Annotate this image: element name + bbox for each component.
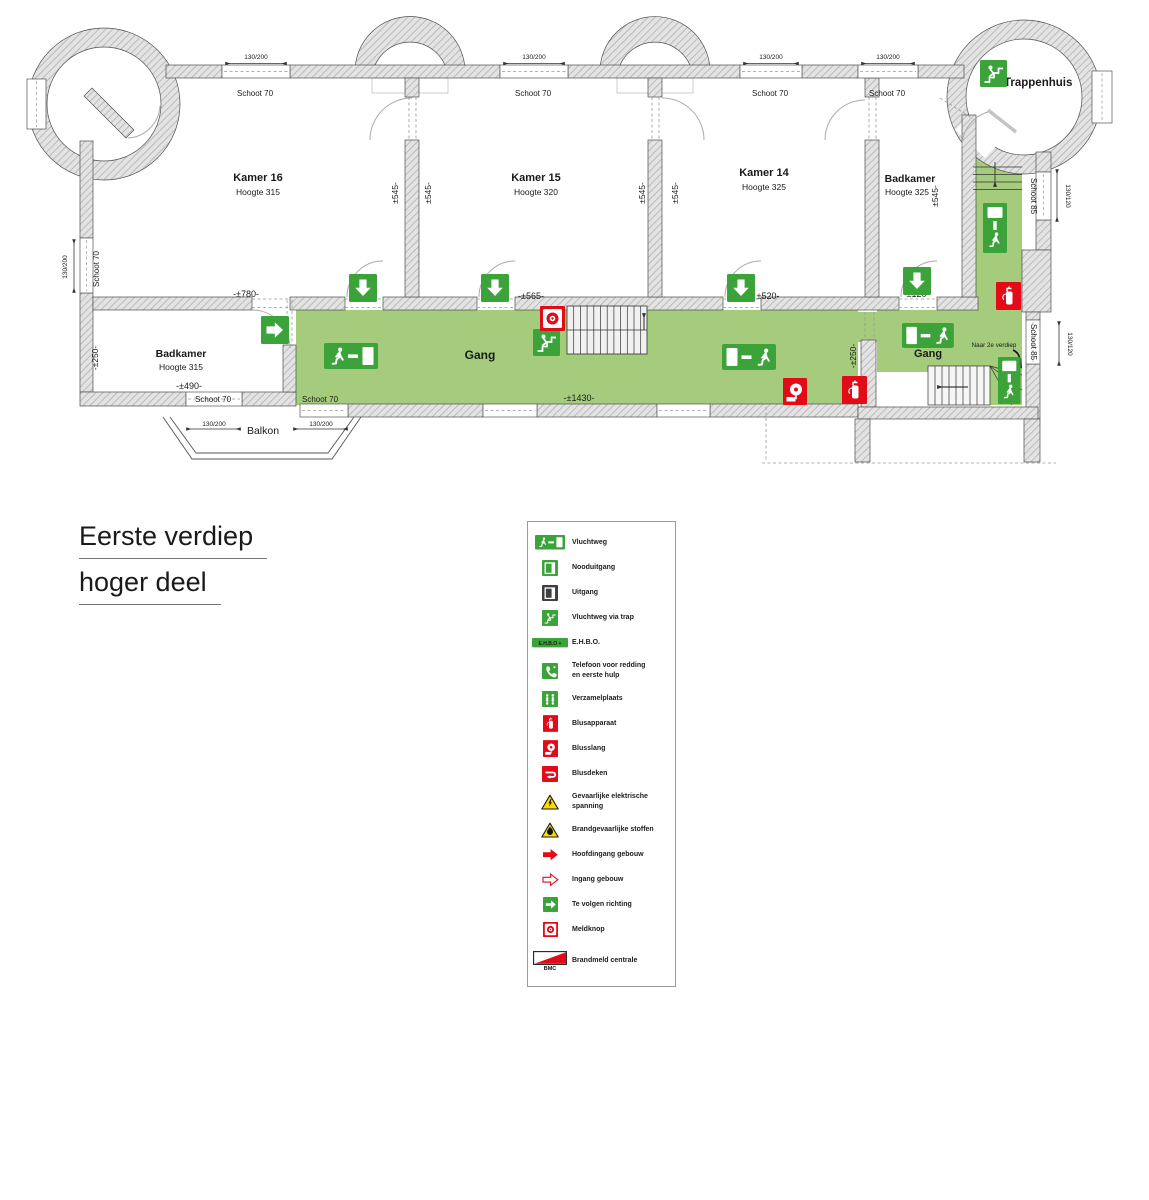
evacuation-plan-page: { "title": {"line1": "Eerste verdiep", "… [0, 0, 1149, 1200]
emergency-exit-icon [528, 560, 572, 576]
room-kamer14-label: Kamer 14 [739, 167, 789, 179]
legend-label: en eerste hulp [572, 671, 645, 680]
fire-hose-icon [528, 740, 572, 757]
legend-label: Verzamelplaats [572, 694, 623, 703]
schoot85-bottom: Schoot 85 [1029, 324, 1038, 361]
electrical-hazard-icon [528, 794, 572, 810]
escape-via-stairs-icon [528, 610, 572, 626]
dim-130-200: 130/200 [522, 54, 546, 61]
legend-label: Brandgevaarlijke stoffen [572, 825, 654, 834]
rescue-phone-icon [528, 663, 572, 679]
legend-item-ingang: Ingang gebouw [528, 867, 675, 892]
direction-right-icon [261, 316, 289, 344]
escape-route-sign-icon [528, 535, 572, 550]
fire-blanket-icon [528, 766, 572, 782]
legend-item-hoofdingang: Hoofdingang gebouw [528, 842, 675, 867]
room-kamer16-height: Hoogte 315 [236, 187, 280, 197]
alarm-button-icon [540, 306, 565, 331]
legend-label: spanning [572, 802, 648, 811]
dim-130-120-bottom: 130/120 [1066, 332, 1073, 356]
escape-route-sign [722, 344, 776, 370]
legend-item-ehbo: E.H.B.O + E.H.B.O. [528, 630, 675, 655]
gang-right-label: Gang [914, 348, 942, 360]
dim-545: ±545- [390, 182, 400, 204]
legend-label: Brandmeld centrale [572, 956, 637, 965]
dim-130-200-balkon: 130/200 [202, 421, 226, 428]
main-entrance-arrow-icon [528, 847, 572, 863]
bmc-label: BMC [544, 966, 557, 972]
dim-1430: -±1430- [564, 393, 595, 403]
direction-down-icon [903, 267, 931, 295]
dim-250-left: -±250- [90, 346, 100, 371]
dim-545: ±545- [637, 182, 647, 204]
legend-label: Nooduitgang [572, 563, 615, 572]
legend-item-blusapparaat: Blusapparaat [528, 711, 675, 736]
room-kamer15-label: Kamer 15 [511, 172, 561, 184]
schoot70-label: Schoot 70 [869, 89, 906, 98]
legend-label: Ingang gebouw [572, 875, 623, 884]
legend-item-blusslang: Blusslang [528, 736, 675, 761]
legend-label: Blusapparaat [572, 719, 616, 728]
room-kamer15-height: Hoogte 320 [514, 187, 558, 197]
escape-via-stairs-icon [533, 329, 560, 356]
dim-545: ±545- [670, 182, 680, 204]
legend-label: Gevaarlijke elektrische [572, 792, 648, 801]
dim-130-120-top: 130/120 [1064, 184, 1071, 208]
dim-520: ±520- [757, 291, 780, 301]
room-kamer14-height: Hoogte 325 [742, 182, 786, 192]
legend-item-te-volgen-richting: Te volgen richting [528, 892, 675, 917]
room-badkamer-onder-label: Badkamer [156, 348, 207, 360]
balkon-label: Balkon [247, 425, 279, 437]
legend-label: Telefoon voor redding [572, 661, 645, 670]
legend-label: Meldknop [572, 925, 605, 934]
dim-130-200-left: 130/200 [62, 255, 69, 279]
legend-item-elektrische-spanning: Gevaarlijke elektrische spanning [528, 786, 675, 817]
direction-down-icon [349, 274, 377, 302]
fire-extinguisher-icon [528, 715, 572, 732]
flammable-hazard-icon [528, 822, 572, 838]
title-line1: Eerste verdiep [79, 517, 267, 559]
legend-item-verzamelplaats: Verzamelplaats [528, 686, 675, 711]
legend-item-vluchtweg: Vluchtweg [528, 530, 675, 555]
floor-plan-svg: Kamer 16 Hoogte 315 Kamer 15 Hoogte 320 … [0, 0, 1149, 480]
page-title: Eerste verdiep hoger deel [79, 517, 267, 605]
legend-item-brandmeldcentrale: BMC Brandmeld centrale [528, 942, 675, 980]
room-badkamer-boven-label: Badkamer [885, 173, 936, 185]
schoot70-bottom: Schoot 70 [195, 395, 232, 404]
entrance-arrow-icon [528, 872, 572, 888]
legend-item-uitgang: Uitgang [528, 580, 675, 605]
stairs-middle [567, 306, 647, 354]
dim-780: -±780- [233, 289, 259, 299]
fire-extinguisher-icon [996, 282, 1021, 310]
schoot70-label: Schoot 70 [752, 89, 789, 98]
direction-down-icon [727, 274, 755, 302]
schoot85-top: Schoot 85 [1029, 178, 1038, 215]
legend-label: Hoofdingang gebouw [572, 850, 644, 859]
legend-label: Vluchtweg [572, 538, 607, 547]
legend-item-telefoon: Telefoon voor redding en eerste hulp [528, 655, 675, 686]
dim-130-200: 130/200 [759, 54, 783, 61]
legend-label: Blusdeken [572, 769, 607, 778]
escape-route-sign-vertical [983, 203, 1007, 253]
dim-130-200-balkon: 130/200 [309, 421, 333, 428]
direction-down-icon [481, 274, 509, 302]
naar-2e-verdiep-label: Naar 2e verdiep [972, 342, 1017, 349]
dim-130-200: 130/200 [876, 54, 900, 61]
direction-icon [528, 897, 572, 912]
schoot70-label: Schoot 70 [237, 89, 274, 98]
legend-label: Blusslang [572, 744, 605, 753]
legend-label: Te volgen richting [572, 900, 632, 909]
exit-icon [528, 585, 572, 601]
room-badkamer-onder-height: Hoogte 315 [159, 362, 203, 372]
escape-route-sign [324, 343, 378, 369]
dim-545: ±545- [930, 185, 940, 207]
title-line2: hoger deel [79, 563, 221, 605]
legend: Vluchtweg Nooduitgang Uitgang Vluchtweg … [527, 521, 676, 987]
fire-extinguisher-icon [842, 376, 867, 404]
schoot70-label: Schoot 70 [515, 89, 552, 98]
legend-label: Vluchtweg via trap [572, 613, 634, 622]
legend-item-vluchtweg-via-trap: Vluchtweg via trap [528, 605, 675, 630]
escape-route-sign [902, 323, 954, 348]
assembly-point-icon [528, 691, 572, 707]
svg-text:E.H.B.O +: E.H.B.O + [539, 641, 562, 647]
fire-hose-icon [783, 378, 807, 405]
schoot70-bottom: Schoot 70 [302, 395, 339, 404]
trappenhuis-label: Trappenhuis [1004, 77, 1072, 89]
dim-490: -±490- [176, 381, 202, 391]
legend-label: Uitgang [572, 588, 598, 597]
dim-545: ±545- [423, 182, 433, 204]
escape-route-sign-vertical [998, 357, 1021, 404]
fire-alarm-panel-icon: BMC [528, 951, 572, 972]
legend-item-blusdeken: Blusdeken [528, 761, 675, 786]
room-badkamer-boven-height: Hoogte 325 [885, 187, 929, 197]
schoot70-left: Schoot 70 [92, 250, 101, 287]
first-aid-icon: E.H.B.O + [528, 638, 572, 648]
legend-item-meldknop: Meldknop [528, 917, 675, 942]
floor-plan: Kamer 16 Hoogte 315 Kamer 15 Hoogte 320 … [0, 0, 1149, 480]
legend-item-brandgevaarlijke-stoffen: Brandgevaarlijke stoffen [528, 817, 675, 842]
alarm-button-icon [528, 922, 572, 937]
dim-130-200: 130/200 [244, 54, 268, 61]
escape-via-stairs-icon [980, 60, 1007, 87]
room-kamer16-label: Kamer 16 [233, 172, 283, 184]
legend-item-nooduitgang: Nooduitgang [528, 555, 675, 580]
dim-250-right: -±250- [848, 344, 858, 369]
legend-label: E.H.B.O. [572, 638, 600, 647]
gang-left-label: Gang [465, 348, 496, 362]
dim-565: -±565- [518, 291, 544, 301]
